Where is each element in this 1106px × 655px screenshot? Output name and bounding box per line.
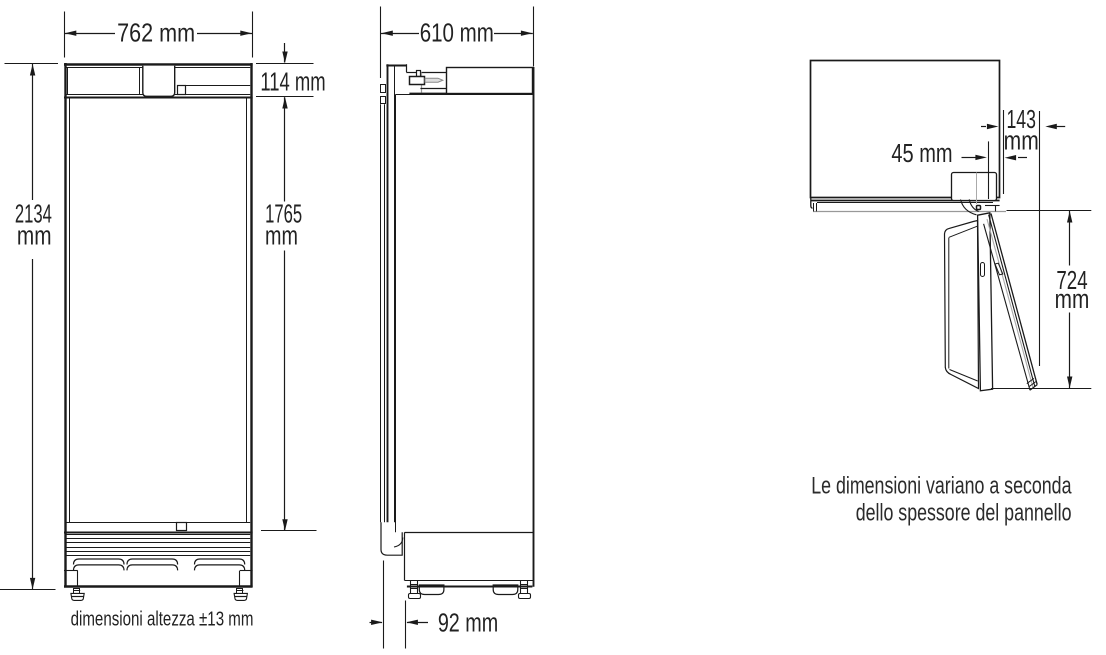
svg-text:dello spessore del pannello: dello spessore del pannello (856, 500, 1072, 526)
svg-text:mm: mm (1055, 285, 1090, 314)
svg-text:92 mm: 92 mm (438, 608, 498, 637)
svg-text:dimensioni altezza ±13 mm: dimensioni altezza ±13 mm (71, 608, 254, 631)
svg-text:45 mm: 45 mm (891, 138, 952, 167)
svg-text:114 mm: 114 mm (260, 67, 325, 96)
svg-text:610 mm: 610 mm (420, 18, 494, 47)
svg-text:Le dimensioni variano a second: Le dimensioni variano a seconda (811, 473, 1071, 499)
svg-text:762 mm: 762 mm (117, 19, 195, 48)
svg-text:mm: mm (17, 221, 52, 250)
svg-text:mm: mm (265, 221, 298, 250)
svg-text:mm: mm (1004, 128, 1039, 157)
